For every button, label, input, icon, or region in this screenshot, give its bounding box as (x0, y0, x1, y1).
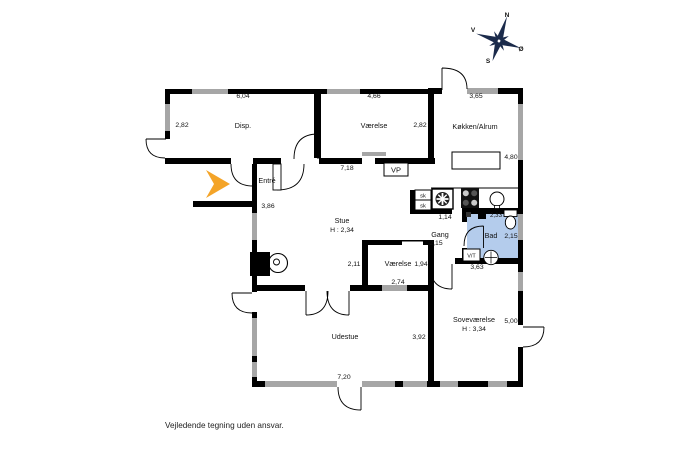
dim-udestue-width: 7,20 (337, 374, 350, 381)
wall-segment (362, 240, 434, 245)
compass-label-west: V (471, 27, 476, 34)
dim-vaer2-bottom: 2,74 (391, 279, 404, 286)
vt-label: V/T (467, 254, 476, 260)
floor-drain-icon (466, 212, 471, 217)
wood-stove-door (274, 259, 280, 265)
window (265, 381, 337, 387)
door-gap (305, 285, 350, 291)
window (518, 104, 523, 160)
stove-burner (463, 200, 469, 206)
closet-label: sk (420, 194, 426, 200)
door-gap (434, 258, 455, 264)
room-label-udestue: Udestue (332, 332, 359, 341)
dim-koekken-width: 3,65 (469, 93, 482, 100)
window (403, 381, 427, 387)
window (192, 89, 228, 94)
closet-label: sk (420, 204, 426, 210)
window (488, 381, 507, 387)
vp-label: VP (391, 166, 401, 175)
window (440, 381, 458, 387)
dim-stue-width: 7,18 (340, 165, 353, 172)
room-label-disp: Disp. (235, 121, 251, 130)
wall-segment (428, 240, 434, 387)
door-gap (252, 292, 257, 312)
stove-burner (463, 190, 469, 196)
room-height-sovevaerelse: H : 3,34 (462, 326, 486, 333)
wall-segment (428, 88, 434, 164)
wall-segment (193, 201, 257, 207)
room-label-entre: Entré (258, 176, 275, 185)
window (252, 362, 257, 377)
room-label-sovevaerelse: Soveværelse (453, 315, 495, 324)
disclaimer-text: Vejledende tegning uden ansvar. (165, 421, 284, 430)
stove-burner (471, 200, 477, 206)
window (165, 104, 170, 131)
toilet-icon (504, 210, 517, 217)
door-gap (442, 88, 467, 94)
stove-burner (471, 190, 477, 196)
dim-vaer1-width: 4,66 (367, 93, 380, 100)
dim-vaer1-depth: 2,82 (413, 122, 426, 129)
floorplan-page: N Ø S V Disp. Værelse Køkken/Alrum Entré… (0, 0, 687, 457)
room-label-bad: Bad (485, 231, 498, 240)
fireplace-block (250, 252, 270, 276)
dim-bad-width: 2,15 (504, 233, 517, 240)
door-gap (518, 325, 523, 347)
room-label-stue: Stue (335, 216, 350, 225)
toilet-bowl (505, 216, 515, 229)
room-label-vaerelse-mid: Værelse (385, 259, 412, 268)
dim-koekken-depth: 4,80 (504, 154, 517, 161)
compass-label-south: S (486, 58, 491, 65)
dim-vaer2-left: 2,11 (348, 261, 361, 268)
wall-segment (314, 94, 321, 158)
dim-sove-depth: 5,00 (504, 318, 517, 325)
dim-closet: 1,14 (438, 214, 451, 221)
wall-segment (362, 240, 368, 291)
window (518, 214, 523, 240)
window (518, 272, 523, 291)
door-gap (337, 381, 362, 387)
door-gap (402, 242, 423, 246)
stove-icon (461, 188, 479, 208)
dim-disp-width: 6,04 (236, 93, 249, 100)
dim-vaer2-width: 1,94 (414, 261, 427, 268)
heat-pump-unit (362, 152, 386, 156)
dim-disp-depth: 2,82 (175, 122, 188, 129)
floorplan-drawing: N Ø S V Disp. Værelse Køkken/Alrum Entré… (0, 0, 687, 457)
dim-bad-top: 2,33 (490, 212, 503, 219)
opening-line (402, 240, 423, 242)
kitchen-sink-icon (490, 192, 504, 206)
door-gap (281, 158, 319, 164)
door-gap (362, 158, 375, 164)
compass-label-north: N (505, 12, 510, 19)
kitchen-sink-tap (495, 206, 500, 209)
kitchen-island (452, 152, 500, 169)
dim-bad-bottom: 3,63 (470, 264, 483, 271)
window (327, 89, 360, 94)
room-label-gang: Gang (431, 230, 449, 239)
window (362, 381, 395, 387)
door-gap (165, 139, 170, 158)
window (252, 213, 257, 240)
window (252, 318, 257, 356)
dim-udestue-depth: 3,92 (412, 334, 425, 341)
room-label-vaerelse-top: Værelse (361, 121, 388, 130)
door-post (478, 211, 486, 219)
door-gap (231, 158, 253, 164)
room-label-koekken: Køkken/Alrum (452, 122, 497, 131)
dim-gang-width: 2,15 (429, 240, 442, 247)
compass-label-east: Ø (518, 46, 523, 53)
room-height-stue: H : 2,34 (330, 227, 354, 234)
dim-entre-wall: 3,86 (261, 203, 274, 210)
